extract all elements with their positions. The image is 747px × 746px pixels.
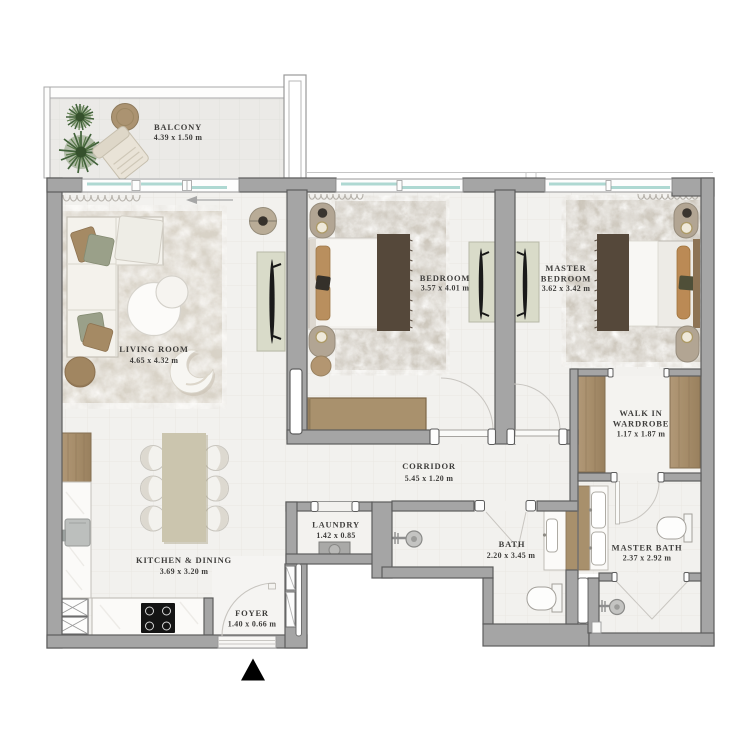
svg-text:LIVING ROOM: LIVING ROOM xyxy=(119,344,188,354)
svg-text:BEDROOM: BEDROOM xyxy=(541,274,591,284)
svg-text:LAUNDRY: LAUNDRY xyxy=(312,520,360,530)
svg-text:MASTER BATH: MASTER BATH xyxy=(612,543,683,553)
svg-text:WALK IN: WALK IN xyxy=(619,408,662,418)
svg-text:5.45 x 1.20 m: 5.45 x 1.20 m xyxy=(405,474,454,483)
svg-text:BALCONY: BALCONY xyxy=(154,122,202,132)
svg-text:1.17 x 1.87 m: 1.17 x 1.87 m xyxy=(617,430,666,439)
svg-text:3.69 x 3.20 m: 3.69 x 3.20 m xyxy=(160,567,209,576)
svg-text:FOYER: FOYER xyxy=(235,608,269,618)
svg-text:1.42 x 0.85: 1.42 x 0.85 xyxy=(316,531,355,540)
svg-text:KITCHEN & DINING: KITCHEN & DINING xyxy=(136,555,232,565)
svg-text:3.57 x 4.01 m: 3.57 x 4.01 m xyxy=(421,284,470,293)
svg-text:2.20 x 3.45 m: 2.20 x 3.45 m xyxy=(487,551,536,560)
svg-text:BATH: BATH xyxy=(499,539,526,549)
svg-text:WARDROBE: WARDROBE xyxy=(613,419,669,429)
svg-text:MASTER: MASTER xyxy=(545,263,586,273)
svg-text:BEDROOM: BEDROOM xyxy=(420,273,470,283)
svg-text:2.37 x 2.92 m: 2.37 x 2.92 m xyxy=(623,554,672,563)
svg-text:1.40 x 0.66 m: 1.40 x 0.66 m xyxy=(228,620,277,629)
svg-text:3.62 x 3.42 m: 3.62 x 3.42 m xyxy=(542,284,591,293)
svg-text:CORRIDOR: CORRIDOR xyxy=(402,461,456,471)
svg-text:4.39 x 1.50 m: 4.39 x 1.50 m xyxy=(154,133,203,142)
svg-text:4.65 x 4.32 m: 4.65 x 4.32 m xyxy=(130,356,179,365)
